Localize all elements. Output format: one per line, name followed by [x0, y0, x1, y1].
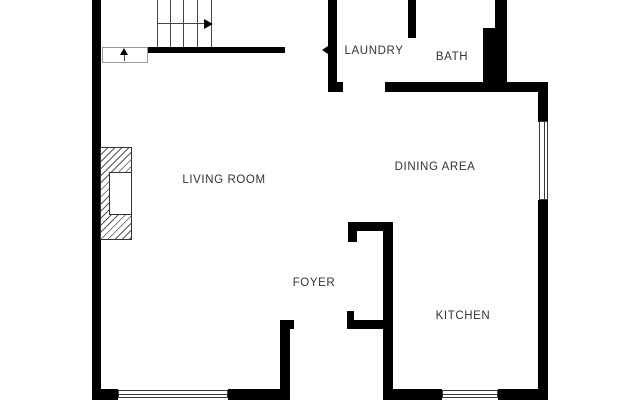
bath-right-wall-upper: [495, 0, 507, 28]
room-label-laundry: LAUNDRY: [345, 45, 404, 57]
room-label-foyer: FOYER: [293, 277, 336, 289]
room-label-kitchen: KITCHEN: [436, 310, 491, 322]
laundry-left-wall: [328, 0, 337, 92]
laundry-bottom-foot-wall: [328, 82, 343, 92]
closet-bottom-stub-wall: [347, 311, 354, 320]
foyer-left-wall: [280, 320, 290, 400]
closet-bottom-bar-wall: [347, 320, 386, 329]
window-pane-line: [119, 394, 227, 395]
kitchen-window: [442, 390, 498, 398]
floorplan-canvas: LIVING ROOM DINING AREA LAUNDRY BATH FOY…: [0, 0, 640, 415]
dining-area-window: [539, 121, 548, 200]
room-label-dining-area: DINING AREA: [395, 161, 476, 173]
stair-up-arrow-icon: [120, 48, 128, 55]
window-pane-line: [443, 394, 497, 395]
room-label-bath: BATH: [436, 51, 468, 63]
fireplace-firebox: [109, 172, 132, 215]
stair-direction-arrow-icon: [204, 19, 213, 29]
exterior-bottom-wall-west-a: [92, 389, 118, 400]
laundry-door-swing-icon: [322, 46, 328, 54]
closet-right-wall: [383, 222, 393, 400]
stair-landing-wall: [148, 47, 285, 53]
exterior-right-wall-lower: [538, 200, 548, 400]
bath-laundry-bottom-wall: [385, 82, 548, 92]
closet-left-stub-wall: [348, 222, 357, 242]
living-room-window: [118, 390, 228, 398]
room-label-living-room: LIVING ROOM: [182, 174, 265, 186]
laundry-bath-divider-wall: [408, 0, 416, 38]
foyer-left-wall-cap: [290, 320, 294, 329]
window-pane-line: [544, 122, 545, 199]
stair-direction-line: [157, 23, 205, 24]
